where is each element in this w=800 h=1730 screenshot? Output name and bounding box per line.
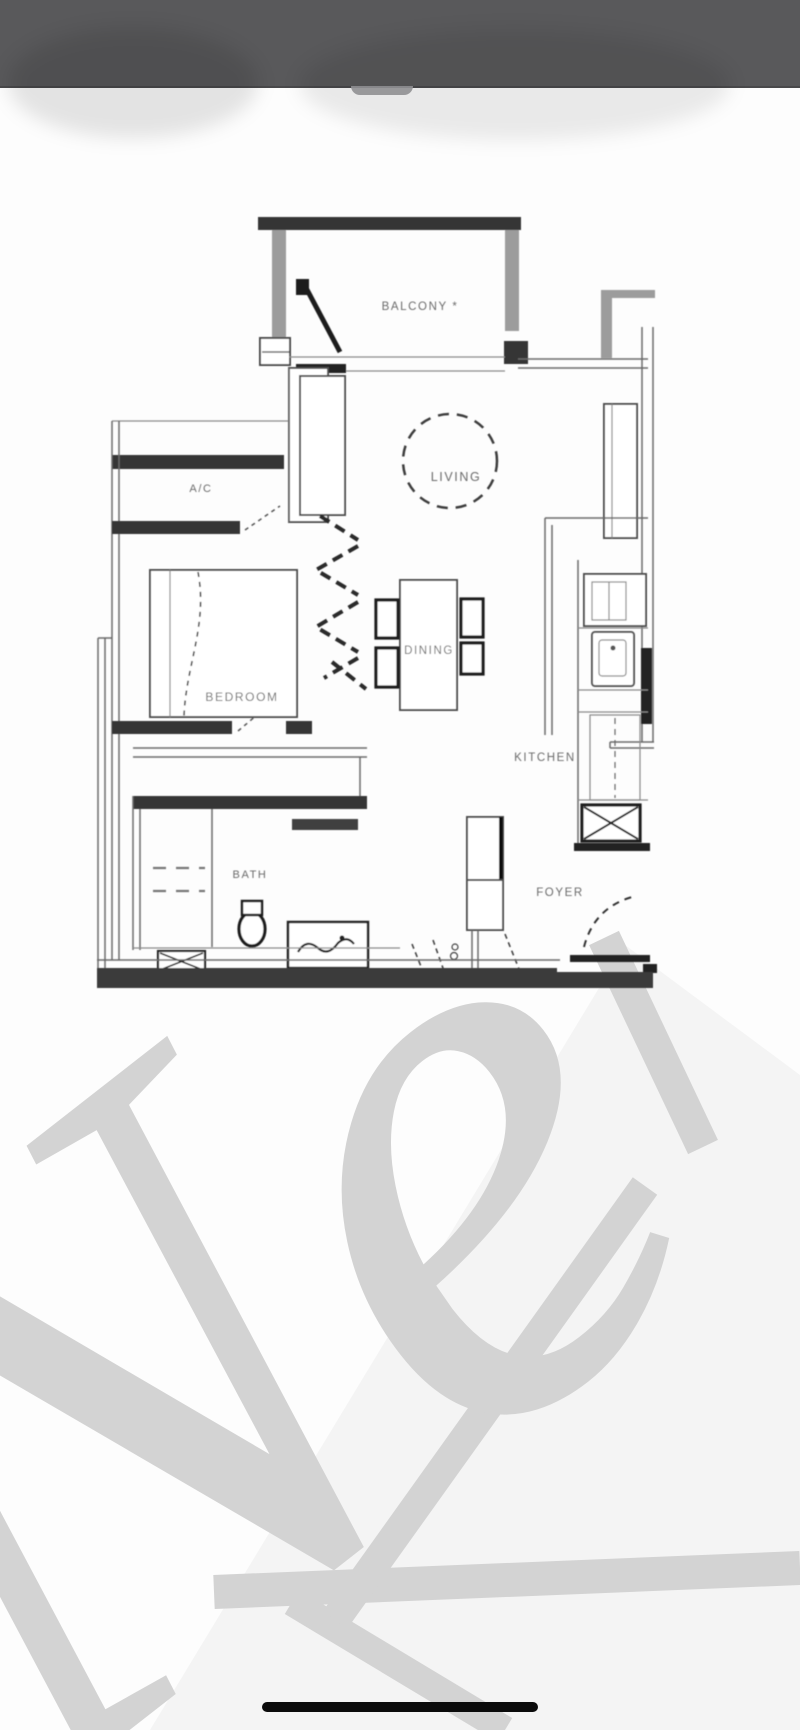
room-label-balcony: BALCONY *: [382, 301, 459, 313]
vanity-symbol: [288, 922, 368, 968]
bath-structure: [133, 796, 400, 972]
living-furniture: [289, 368, 637, 538]
room-label-dining: DINING: [404, 645, 454, 657]
room-label-kitchen: KITCHEN: [514, 752, 576, 764]
kitchen-structure: [545, 518, 650, 851]
entrance-door: [570, 955, 650, 962]
floor-plan-image: BALCONY * LIVING A/C BEDROOM DINING KITC…: [0, 0, 800, 1730]
door-swing-arc: [584, 897, 632, 947]
room-label-ac: A/C: [189, 483, 212, 495]
wardrobe-symbol: [316, 516, 366, 689]
toilet-symbol: [239, 912, 265, 946]
home-indicator[interactable]: [262, 1702, 538, 1712]
room-label-foyer: FOYER: [536, 887, 584, 899]
room-label-living: LIVING: [431, 470, 482, 484]
room-label-bath: BATH: [233, 869, 268, 881]
screenshot-page: Ne: [0, 0, 800, 1730]
room-label-bedroom: BEDROOM: [205, 690, 278, 704]
balcony-structure: [258, 217, 655, 373]
